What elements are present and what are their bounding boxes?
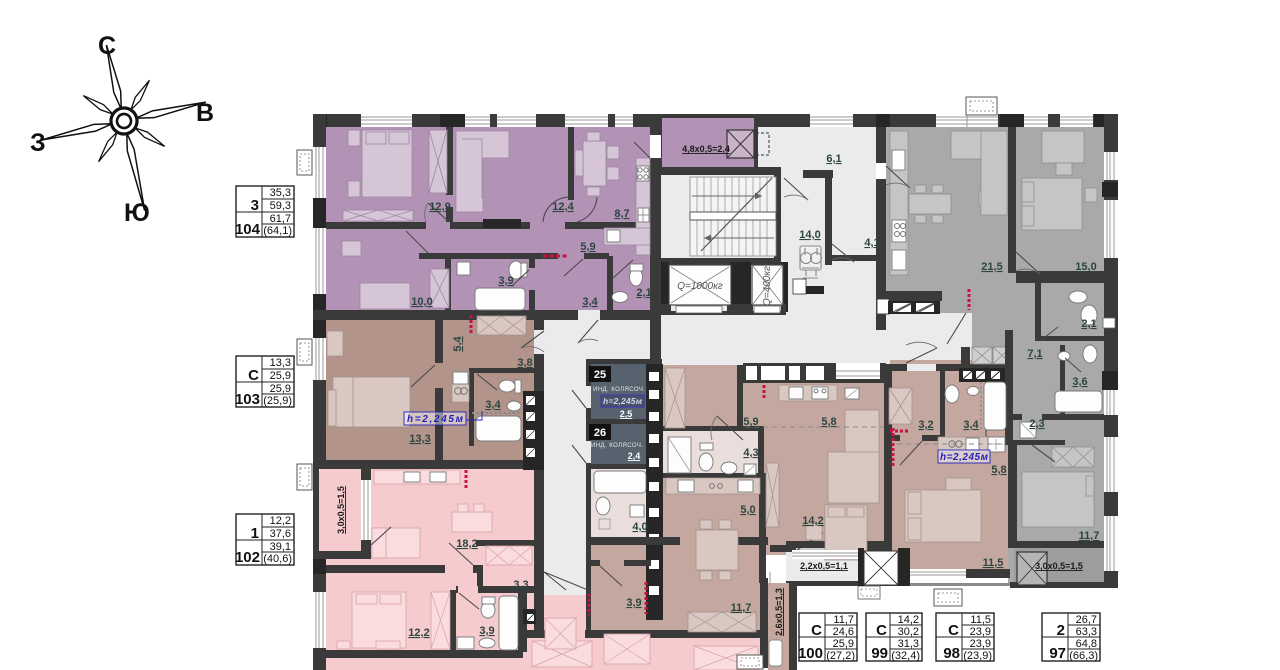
svg-text:5,4: 5,4 [452, 335, 464, 351]
svg-text:3,8: 3,8 [517, 357, 532, 369]
svg-text:31,3: 31,3 [898, 638, 919, 650]
svg-text:(64,1): (64,1) [263, 225, 292, 237]
svg-text:h=2,245м: h=2,245м [407, 414, 464, 425]
svg-text:26: 26 [594, 427, 606, 439]
svg-text:2,1: 2,1 [1081, 318, 1096, 330]
svg-text:2,5: 2,5 [620, 409, 633, 419]
svg-text:35,3: 35,3 [270, 187, 291, 199]
svg-text:3,6: 3,6 [1072, 376, 1087, 388]
svg-text:З: З [30, 129, 46, 157]
svg-text:h=2,245м: h=2,245м [940, 452, 989, 463]
svg-text:2,3: 2,3 [1029, 418, 1044, 430]
svg-text:3,2: 3,2 [918, 419, 933, 431]
svg-text:25,9: 25,9 [270, 370, 291, 382]
svg-text:10,0: 10,0 [411, 296, 432, 308]
svg-text:8,7: 8,7 [614, 208, 629, 220]
svg-text:59,3: 59,3 [270, 200, 291, 212]
svg-text:1: 1 [251, 525, 259, 542]
svg-text:2,2х0,5=1,1: 2,2х0,5=1,1 [800, 561, 848, 571]
svg-text:15,0: 15,0 [1075, 261, 1096, 273]
svg-text:25: 25 [594, 369, 606, 381]
svg-text:3,4: 3,4 [485, 399, 501, 411]
svg-text:5,8: 5,8 [821, 416, 836, 428]
svg-text:25,9: 25,9 [833, 638, 854, 650]
svg-text:4,8х0,5=2,4: 4,8х0,5=2,4 [682, 144, 730, 154]
svg-text:102: 102 [235, 549, 260, 566]
svg-text:14,2: 14,2 [898, 614, 919, 626]
svg-text:5,0: 5,0 [740, 504, 755, 516]
svg-text:h=2,245м: h=2,245м [603, 396, 643, 406]
svg-text:24,6: 24,6 [833, 626, 854, 638]
svg-text:4,3: 4,3 [743, 447, 758, 459]
svg-text:5,9: 5,9 [580, 241, 595, 253]
svg-text:99: 99 [871, 645, 888, 662]
svg-text:Q=1000кг: Q=1000кг [677, 281, 723, 292]
svg-text:5,9: 5,9 [743, 416, 758, 428]
svg-text:2,1: 2,1 [636, 287, 651, 299]
svg-text:104: 104 [235, 221, 261, 238]
svg-text:3,9: 3,9 [626, 597, 641, 609]
svg-text:С: С [98, 32, 116, 60]
svg-text:3,4: 3,4 [582, 296, 598, 308]
svg-text:2,6х0,5=1,3: 2,6х0,5=1,3 [774, 588, 784, 636]
svg-text:18,2: 18,2 [456, 538, 477, 550]
svg-text:13,3: 13,3 [270, 357, 291, 369]
svg-text:С: С [248, 367, 259, 384]
svg-text:(66,3): (66,3) [1069, 650, 1098, 662]
svg-text:11,7: 11,7 [833, 614, 854, 626]
svg-text:(32,4): (32,4) [891, 650, 920, 662]
svg-text:103: 103 [235, 391, 260, 408]
svg-text:6,1: 6,1 [826, 153, 841, 165]
svg-text:3,3: 3,3 [513, 579, 528, 591]
svg-text:12,9: 12,9 [429, 201, 450, 213]
svg-text:7,1: 7,1 [1027, 348, 1042, 360]
svg-text:25,9: 25,9 [270, 383, 291, 395]
svg-text:64,8: 64,8 [1076, 638, 1097, 650]
svg-text:12,2: 12,2 [408, 627, 429, 639]
svg-text:4,1: 4,1 [864, 237, 879, 249]
svg-text:3,4: 3,4 [963, 419, 979, 431]
svg-text:14,2: 14,2 [802, 515, 823, 527]
svg-text:11,5: 11,5 [970, 614, 991, 626]
svg-text:12,4: 12,4 [552, 201, 574, 213]
svg-text:11,5: 11,5 [983, 557, 1004, 569]
svg-text:Ю: Ю [124, 199, 150, 227]
svg-text:13,3: 13,3 [409, 433, 430, 445]
svg-text:С: С [811, 622, 822, 639]
svg-text:2,4: 2,4 [628, 451, 641, 461]
svg-text:39,1: 39,1 [270, 541, 291, 553]
svg-text:100: 100 [798, 645, 823, 662]
svg-text:23,9: 23,9 [970, 638, 991, 650]
svg-text:98: 98 [943, 645, 960, 662]
svg-text:С: С [876, 622, 887, 639]
svg-text:23,9: 23,9 [970, 626, 991, 638]
svg-text:14,0: 14,0 [799, 229, 820, 241]
svg-text:11,7: 11,7 [731, 602, 752, 614]
svg-text:С: С [948, 622, 959, 639]
svg-text:11,7: 11,7 [1079, 530, 1100, 542]
svg-text:3: 3 [251, 197, 259, 214]
svg-text:37,6: 37,6 [270, 528, 291, 540]
svg-text:21,5: 21,5 [981, 261, 1002, 273]
svg-text:3,9: 3,9 [479, 625, 494, 637]
svg-text:30,2: 30,2 [898, 626, 919, 638]
svg-text:ИНД. КОЛЯСОЧ.: ИНД. КОЛЯСОЧ. [591, 443, 643, 449]
svg-text:(40,6): (40,6) [263, 553, 292, 565]
svg-text:ИНД. КОЛЯСОЧ.: ИНД. КОЛЯСОЧ. [593, 387, 645, 393]
svg-text:12,2: 12,2 [270, 515, 291, 527]
svg-text:97: 97 [1049, 645, 1066, 662]
svg-text:63,3: 63,3 [1076, 626, 1097, 638]
svg-text:3,0х0,5=1,5: 3,0х0,5=1,5 [336, 486, 346, 534]
svg-text:5,8: 5,8 [991, 464, 1006, 476]
svg-text:26,7: 26,7 [1076, 614, 1097, 626]
svg-text:(25,9): (25,9) [263, 395, 292, 407]
svg-text:3,9: 3,9 [498, 275, 513, 287]
svg-text:(27,2): (27,2) [826, 650, 855, 662]
svg-text:(23,9): (23,9) [963, 650, 992, 662]
svg-text:2: 2 [1057, 622, 1065, 639]
svg-text:61,7: 61,7 [270, 213, 291, 225]
svg-text:4,0: 4,0 [632, 521, 647, 533]
svg-text:В: В [196, 99, 214, 127]
svg-text:3,0х0,5=1,5: 3,0х0,5=1,5 [1035, 561, 1083, 571]
svg-text:Q=400кг: Q=400кг [762, 266, 773, 306]
